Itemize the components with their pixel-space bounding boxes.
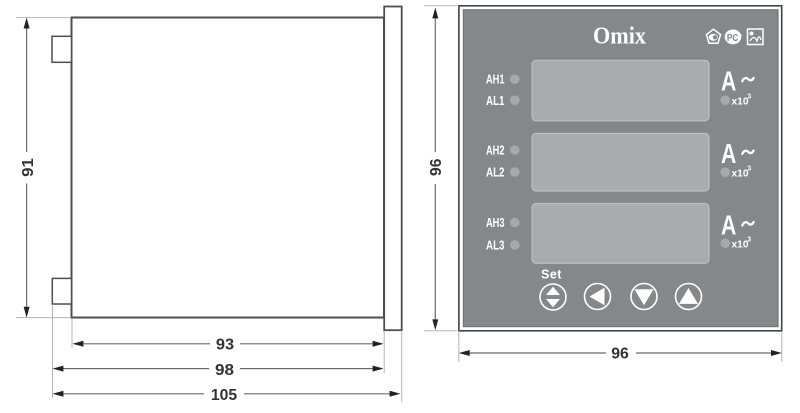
svg-text:AL2: AL2 bbox=[486, 165, 505, 180]
svg-text:AH2: AH2 bbox=[486, 143, 505, 158]
svg-text:AL3: AL3 bbox=[486, 238, 505, 253]
svg-text:AH3: AH3 bbox=[486, 215, 505, 230]
svg-text:A: A bbox=[721, 138, 736, 169]
svg-text:105: 105 bbox=[211, 387, 237, 404]
svg-text:96: 96 bbox=[428, 159, 445, 176]
svg-text:3: 3 bbox=[747, 94, 751, 101]
svg-text:Omix: Omix bbox=[593, 23, 646, 49]
svg-text:Set: Set bbox=[541, 268, 562, 282]
svg-text:3: 3 bbox=[747, 237, 751, 244]
svg-text:A: A bbox=[721, 210, 736, 241]
svg-text:96: 96 bbox=[611, 345, 629, 362]
svg-text:x10: x10 bbox=[732, 169, 749, 180]
svg-text:91: 91 bbox=[20, 158, 37, 177]
svg-text:x10: x10 bbox=[732, 240, 749, 251]
svg-text:3: 3 bbox=[747, 166, 751, 173]
svg-text:x10: x10 bbox=[732, 97, 749, 108]
svg-text:AH1: AH1 bbox=[486, 72, 505, 87]
svg-text:93: 93 bbox=[216, 337, 234, 354]
svg-text:AL1: AL1 bbox=[486, 93, 505, 108]
svg-text:PC: PC bbox=[727, 33, 739, 44]
svg-text:A: A bbox=[721, 65, 736, 96]
svg-text:98: 98 bbox=[215, 362, 234, 379]
